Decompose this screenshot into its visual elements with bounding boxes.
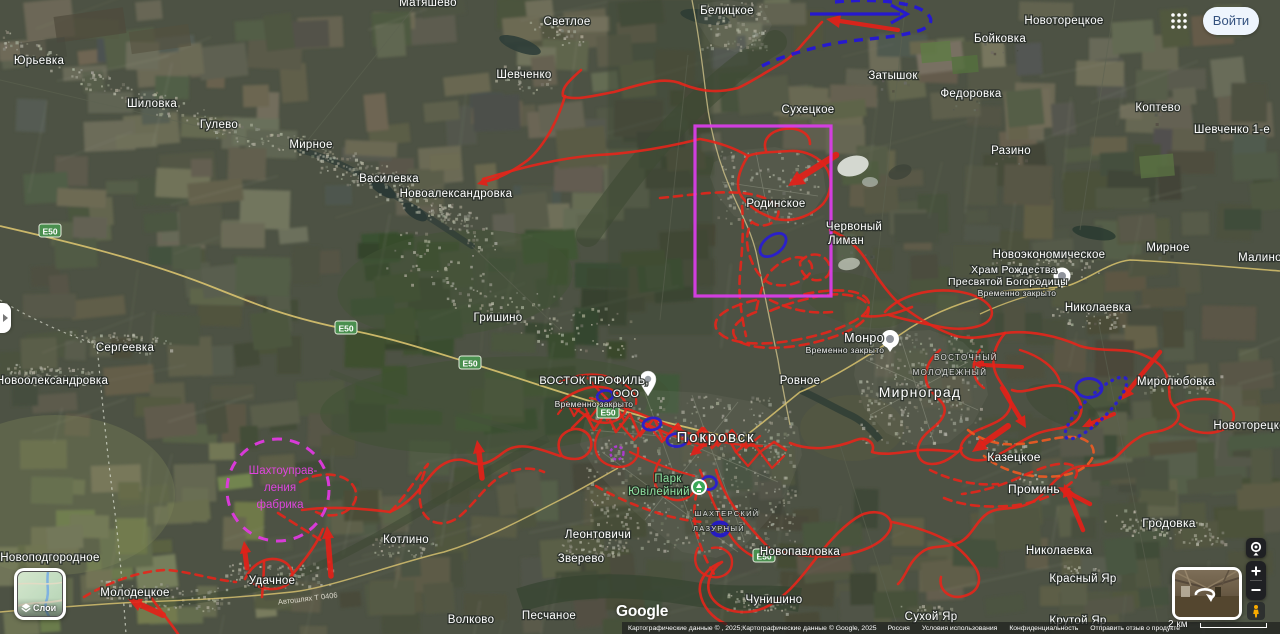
svg-text:Новоолександровка: Новоолександровка (0, 375, 108, 387)
svg-text:Песчаное: Песчаное (522, 610, 576, 622)
svg-text:Е50: Е50 (462, 359, 477, 369)
svg-text:Гришино: Гришино (474, 312, 523, 324)
svg-text:МОЛОДЕЖНЫЙ: МОЛОДЕЖНЫЙ (913, 368, 988, 377)
svg-text:Василевка: Василевка (359, 173, 419, 185)
svg-text:Новоэкономическое: Новоэкономическое (993, 249, 1106, 261)
svg-text:Миролюбовка: Миролюбовка (1137, 376, 1215, 388)
svg-text:Котлино: Котлино (383, 534, 429, 546)
svg-text:Николаевка: Николаевка (1065, 302, 1132, 314)
svg-text:Светлое: Светлое (543, 16, 590, 28)
svg-text:Коптево: Коптево (1135, 102, 1180, 114)
svg-text:ВОСТОЧНЫЙ: ВОСТОЧНЫЙ (934, 353, 998, 362)
svg-text:Временно закрыто: Временно закрыто (806, 345, 885, 355)
svg-text:ШАХТЕРСКИЙ: ШАХТЕРСКИЙ (695, 509, 760, 518)
svg-text:Храм Рождества: Храм Рождества (971, 264, 1057, 276)
svg-text:Леонтовичи: Леонтовичи (565, 529, 631, 541)
svg-text:Е50: Е50 (42, 227, 57, 237)
svg-text:ЛАЗУРНЫЙ: ЛАЗУРНЫЙ (693, 524, 745, 533)
svg-text:Е50: Е50 (338, 324, 353, 334)
svg-text:Временно закрыто: Временно закрыто (978, 288, 1057, 298)
svg-text:Разино: Разино (991, 145, 1031, 157)
svg-text:Мирное: Мирное (289, 139, 332, 151)
svg-text:Чунишино: Чунишино (746, 594, 803, 606)
svg-text:Проминь: Проминь (1008, 482, 1060, 496)
svg-text:Красный Яр: Красный Яр (1049, 573, 1116, 585)
svg-text:Шиловка: Шиловка (127, 98, 177, 110)
svg-text:Новоалександровка: Новоалександровка (400, 188, 513, 200)
svg-text:Червоный: Червоный (826, 221, 882, 233)
svg-text:Затышок: Затышок (868, 70, 918, 82)
svg-text:Гродовка: Гродовка (1142, 516, 1196, 530)
svg-text:Бойковка: Бойковка (974, 33, 1026, 45)
svg-text:Белицкое: Белицкое (700, 5, 754, 17)
svg-text:Шахтоуправ-: Шахтоуправ- (249, 465, 318, 477)
svg-text:Шевченко: Шевченко (496, 69, 551, 81)
svg-text:Николаевка: Николаевка (1026, 545, 1093, 557)
svg-text:Новоторецкое: Новоторецкое (1024, 15, 1103, 27)
svg-text:Молодецкое: Молодецкое (100, 587, 169, 599)
svg-text:Новоподгородное: Новоподгородное (0, 552, 99, 564)
svg-text:Мирноград: Мирноград (879, 384, 961, 400)
svg-text:Мирное: Мирное (1146, 242, 1189, 254)
svg-text:Казецкое: Казецкое (987, 450, 1041, 464)
svg-text:Покровск: Покровск (677, 429, 756, 446)
svg-text:Монро: Монро (844, 331, 884, 345)
svg-text:Сухецкое: Сухецкое (781, 104, 834, 116)
svg-text:ВОСТОК ПРОФИЛЬ,: ВОСТОК ПРОФИЛЬ, (539, 375, 648, 387)
svg-text:Шевченко 1-е: Шевченко 1-е (1194, 124, 1270, 136)
svg-text:Матяшево: Матяшево (399, 0, 457, 9)
svg-text:Парк: Парк (654, 473, 682, 485)
svg-text:Лиман: Лиман (828, 235, 864, 247)
svg-text:Малино: Малино (1238, 252, 1280, 264)
svg-text:фабрика: фабрика (257, 499, 305, 511)
svg-text:Сергеевка: Сергеевка (96, 342, 155, 354)
svg-text:Ювілейний: Ювілейний (628, 486, 690, 498)
svg-text:Ровное: Ровное (780, 375, 821, 387)
svg-text:Новопавловка: Новопавловка (760, 546, 840, 558)
svg-text:Пресвятой Богородицы: Пресвятой Богородицы (948, 276, 1068, 288)
svg-text:Федоровка: Федоровка (940, 88, 1002, 100)
svg-text:Родинское: Родинское (746, 198, 805, 210)
svg-text:Волково: Волково (448, 614, 495, 626)
svg-text:Зверево: Зверево (558, 553, 605, 565)
svg-text:ления: ления (264, 482, 296, 494)
svg-text:Временно закрыто: Временно закрыто (555, 399, 634, 409)
svg-text:Удачное: Удачное (249, 575, 296, 587)
svg-text:Е50: Е50 (600, 408, 615, 418)
svg-text:Новоторецкое: Новоторецкое (1213, 420, 1280, 432)
svg-text:Юрьевка: Юрьевка (14, 55, 65, 67)
svg-text:Гулево: Гулево (200, 119, 238, 131)
